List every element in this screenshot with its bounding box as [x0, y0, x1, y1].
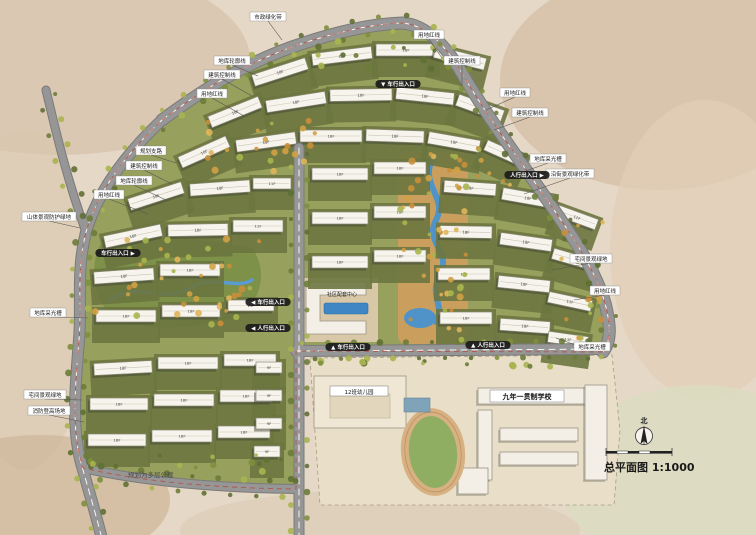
building-floors-label: 18F — [396, 254, 403, 259]
landscape-tree — [436, 268, 440, 272]
street-tree — [140, 125, 146, 131]
entrance-marker-text: ▲ 车行出入口 — [331, 343, 365, 351]
landscape-tree — [301, 158, 307, 164]
landscape-tree — [335, 38, 342, 45]
building-floors-label: 18F — [115, 402, 122, 407]
landscape-tree — [448, 277, 454, 283]
building-floors-label: 18F — [336, 172, 343, 177]
street-tree — [69, 319, 74, 324]
landscape-tree — [174, 311, 181, 318]
street-tree — [304, 385, 309, 390]
street-tree — [547, 215, 553, 221]
landscape-tree — [455, 184, 459, 188]
entrance-marker: ▲ 车行出入口 — [325, 343, 370, 351]
landscape-tree — [270, 168, 276, 174]
landscape-tree — [208, 321, 215, 328]
landscape-tree — [443, 308, 448, 313]
landscape-tree — [270, 122, 274, 126]
building-slab: 18F — [86, 434, 146, 449]
landscape-tree — [559, 257, 563, 261]
landscape-tree — [194, 465, 198, 469]
entrance-marker-text: ▲ 人行出入口 — [471, 341, 505, 349]
street-tree — [74, 476, 80, 482]
callout-text: 山体景观防护绿地 — [27, 213, 72, 221]
callout-text: 用地红线 — [98, 191, 121, 199]
building-floors-label: 18F — [292, 99, 300, 105]
callout-text: 用地红线 — [201, 90, 224, 98]
sports-court — [404, 398, 430, 412]
building-slab: 18F — [160, 305, 220, 320]
landscape-tree — [547, 364, 553, 370]
landscape-tree — [461, 208, 467, 214]
building-floors-label: 18F — [216, 185, 223, 190]
planning-note-text: 规划为多层公建 — [128, 470, 174, 479]
landscape-tree — [458, 284, 464, 290]
street-tree — [495, 355, 500, 360]
street-tree — [70, 293, 75, 298]
street-tree — [451, 44, 456, 49]
street-tree — [202, 491, 207, 496]
landscape-tree — [233, 314, 239, 320]
landscape-tree — [429, 152, 433, 156]
street-tree — [106, 166, 112, 172]
building-floors-label: 18F — [242, 394, 249, 399]
street-tree — [40, 108, 45, 113]
street-tree — [113, 464, 118, 469]
building-floors-label: 18F — [187, 309, 194, 314]
building-floors-label: 18F — [521, 323, 528, 328]
street-tree — [568, 218, 572, 222]
street-tree — [101, 208, 105, 212]
entrance-marker-text: 车行出入口 ▶ — [101, 249, 135, 257]
callout-text: 地库采光槽 — [578, 343, 606, 351]
building-floors-label: 18F — [336, 216, 343, 221]
street-tree — [313, 356, 318, 361]
street-tree — [480, 89, 485, 94]
street-tree — [289, 243, 294, 248]
landscape-tree — [195, 310, 202, 317]
street-tree — [304, 411, 309, 416]
landscape-tree — [457, 327, 462, 332]
street-tree — [52, 158, 58, 164]
landscape-tree — [193, 296, 199, 302]
landscape-tree — [238, 285, 245, 292]
landscape-tree — [362, 361, 366, 365]
street-tree — [160, 108, 164, 112]
street-tree — [190, 474, 194, 478]
building-floors-label: 18F — [462, 316, 469, 321]
street-tree — [65, 423, 70, 428]
building-floors-label: 18F — [396, 166, 403, 171]
street-tree — [595, 304, 599, 308]
building-floors-label: 9F — [267, 365, 272, 370]
landscape-tree — [408, 317, 412, 321]
street-tree — [200, 98, 207, 105]
callout-text: 规划支路 — [140, 147, 163, 155]
street-tree — [390, 355, 396, 361]
landscape-tree — [453, 154, 459, 160]
landscape-tree — [231, 293, 238, 300]
landscape-tree — [408, 158, 415, 165]
building-slab: 18F — [374, 44, 436, 59]
landscape-tree — [477, 147, 482, 152]
street-tree — [267, 478, 273, 484]
building-slab: 18F — [310, 212, 368, 227]
landscape-tree — [397, 206, 403, 212]
street-tree — [80, 213, 87, 220]
landscape-tree — [427, 191, 431, 195]
street-tree — [304, 359, 310, 365]
street-tree — [365, 32, 370, 37]
callout-text: 建筑控制线 — [448, 57, 476, 65]
landscape-tree — [462, 272, 467, 277]
street-tree — [488, 130, 492, 134]
landscape-tree — [177, 463, 182, 468]
street-tree — [288, 320, 293, 325]
street-tree — [228, 493, 232, 497]
callout-text: 地库轮廓线 — [218, 57, 246, 65]
landscape-tree — [428, 233, 432, 237]
street-tree — [60, 184, 65, 189]
building-floors-label: 18F — [186, 268, 193, 273]
landscape-tree — [217, 320, 223, 326]
callout-text: 沿街景观绿化带 — [551, 170, 590, 178]
street-tree — [80, 409, 86, 415]
building-floors-label: 18F — [421, 93, 428, 99]
building-slab: 18F — [298, 130, 362, 145]
street-tree — [304, 489, 311, 496]
street-tree — [288, 528, 294, 534]
landscape-tree — [404, 196, 410, 202]
landscape-tree — [427, 254, 433, 260]
landscape-tree — [158, 454, 162, 458]
landscape-tree — [403, 63, 407, 67]
street-tree — [376, 14, 381, 19]
landscape-tree — [174, 256, 180, 262]
kindergarten — [314, 376, 406, 428]
street-tree — [46, 133, 51, 138]
landscape-tree — [448, 290, 454, 296]
callout-text: 建筑控制线 — [516, 109, 544, 117]
plan-title: 总平面图 1:1000 — [604, 460, 695, 474]
street-tree — [523, 153, 529, 159]
street-tree — [288, 398, 295, 405]
kindergarten-label-text: 12班幼儿园 — [345, 388, 374, 396]
landscape-tree — [257, 461, 262, 466]
entrance-marker-text: ◀ 人行出入口 — [251, 324, 285, 332]
school-label: 九年一贯制学校 — [490, 390, 564, 402]
swimming-pool — [324, 303, 368, 314]
kindergarten-label: 12班幼儿园 — [330, 386, 388, 396]
landscape-tree — [164, 237, 171, 244]
landscape-tree — [501, 179, 505, 183]
building-floors-label: 18F — [520, 281, 527, 287]
callout-text: 地库轮廓线 — [120, 177, 148, 185]
landscape-tree — [83, 453, 89, 459]
street-tree — [304, 333, 310, 339]
landscape-tree — [353, 53, 358, 58]
street-tree — [267, 61, 273, 67]
street-tree — [377, 339, 384, 346]
street-tree — [324, 25, 329, 30]
entrance-marker: 人行出入口 ▶ — [504, 171, 549, 179]
north-label-text: 北 — [641, 416, 648, 425]
landscape-tree — [259, 468, 266, 475]
landscape-tree — [454, 227, 459, 232]
landscape-tree — [256, 129, 260, 133]
landscape-tree — [479, 158, 484, 163]
landscape-tree — [588, 302, 594, 308]
building-floors-label: 18F — [120, 273, 127, 278]
building-floors-label: 18F — [391, 133, 398, 138]
landscape-tree — [159, 247, 163, 251]
street-tree — [58, 116, 64, 122]
landscape-tree — [206, 129, 213, 136]
building-slab: 9F — [254, 390, 282, 404]
street-tree — [599, 355, 604, 360]
landscape-tree — [254, 453, 258, 457]
landscape-tree — [564, 317, 568, 321]
landscape-tree — [461, 162, 467, 168]
landscape-tree — [205, 155, 211, 161]
building-floors-label: 18F — [194, 228, 201, 233]
landscape-tree — [98, 463, 105, 470]
street-tree — [64, 141, 70, 147]
street-tree — [293, 478, 299, 484]
street-tree — [533, 339, 538, 344]
street-tree — [65, 370, 72, 377]
building-slab: 18F — [364, 129, 424, 146]
street-tree — [304, 437, 310, 443]
street-tree — [304, 177, 310, 183]
building-floors-label: 18F — [357, 93, 364, 98]
street-tree — [123, 145, 128, 150]
street-tree — [288, 502, 294, 508]
building-floors-label: 18F — [522, 239, 530, 245]
landscape-tree — [210, 454, 215, 459]
landscape-tree — [90, 461, 96, 467]
street-tree — [417, 356, 421, 360]
street-tree — [254, 494, 258, 498]
building-floors-label: 18F — [246, 358, 253, 363]
building-floors-label: 18F — [336, 260, 343, 265]
landscape-tree — [181, 301, 186, 306]
landscape-tree — [318, 360, 323, 365]
building-floors-label: 18F — [119, 365, 126, 370]
callout-text: 宅间景观绿地 — [28, 391, 62, 399]
street-tree — [404, 13, 410, 19]
street-tree — [86, 215, 93, 222]
street-tree — [315, 44, 322, 51]
landscape-tree — [282, 148, 288, 154]
street-tree — [289, 425, 294, 430]
landscape-tree — [487, 171, 491, 175]
landscape-tree — [210, 462, 216, 468]
landscape-tree — [439, 293, 443, 297]
entrance-marker-text: 人行出入口 ▶ — [510, 171, 544, 179]
street-tree — [84, 332, 90, 338]
building-floors-label: 18F — [184, 361, 191, 366]
landscape-tree — [527, 364, 532, 369]
street-tree — [582, 239, 588, 245]
street-tree — [241, 476, 248, 483]
street-tree — [304, 255, 310, 261]
landscape-tree — [187, 291, 193, 297]
street-tree — [68, 450, 73, 455]
school-label-text: 九年一贯制学校 — [502, 392, 553, 401]
street-tree — [79, 191, 85, 197]
building-slab: 11F — [251, 178, 291, 192]
landscape-tree — [421, 362, 425, 366]
axis-pond — [404, 308, 436, 328]
street-tree — [473, 108, 479, 114]
building-slab: 18F — [310, 256, 368, 271]
landscape-tree — [225, 148, 230, 153]
street-tree — [349, 19, 354, 24]
landscape-tree — [126, 292, 130, 296]
street-tree — [532, 193, 538, 199]
street-tree — [279, 494, 285, 500]
street-tree — [547, 355, 551, 359]
street-tree — [573, 355, 577, 359]
landscape-tree — [318, 62, 325, 69]
building-floors-label: 11F — [254, 224, 261, 229]
landscape-tree — [464, 253, 468, 257]
street-tree — [91, 230, 97, 236]
building-slab: 18F — [310, 168, 368, 183]
street-tree — [288, 268, 293, 273]
street-tree — [466, 66, 472, 72]
landscape-tree — [420, 56, 427, 63]
street-tree — [53, 92, 57, 96]
landscape-tree — [415, 248, 422, 255]
landscape-tree — [402, 46, 406, 50]
landscape-tree — [457, 158, 462, 163]
street-tree — [100, 509, 106, 515]
entrance-marker: ▲ 人行出入口 — [465, 341, 510, 349]
building-floors-label: 18F — [122, 314, 129, 319]
masterplan-canvas: 18F18F18F18F18F18F18F18F18F18F18F18F18F1… — [0, 0, 756, 535]
community-center-label: 社区配套中心 — [327, 291, 357, 298]
building-slab: 18F — [372, 162, 426, 177]
building-floors-label: 18F — [240, 430, 247, 435]
landscape-tree — [124, 237, 130, 243]
landscape-tree — [142, 237, 148, 243]
building-floors-label: 18F — [180, 398, 187, 403]
street-tree — [304, 229, 309, 234]
street-tree — [614, 314, 618, 318]
street-tree — [339, 357, 343, 361]
landscape-tree — [508, 183, 512, 187]
street-tree — [305, 308, 310, 313]
school-building — [498, 452, 578, 467]
landscape-tree — [248, 459, 255, 466]
landscape-tree — [141, 257, 147, 263]
street-tree — [443, 356, 447, 360]
landscape-tree — [263, 137, 268, 142]
callout-text: 建筑控制线 — [130, 162, 158, 170]
building-slab: 18F — [94, 310, 156, 325]
landscape-tree — [365, 65, 371, 71]
street-tree — [181, 92, 187, 98]
landscape-tree — [306, 118, 312, 124]
street-tree — [520, 355, 526, 361]
street-tree — [305, 152, 309, 156]
building-slab: 11F — [231, 220, 283, 235]
landscape-tree — [271, 149, 278, 156]
street-tree — [226, 65, 230, 69]
callout-text: 用地红线 — [504, 89, 527, 97]
building-slab: 9F — [254, 418, 282, 432]
street-tree — [430, 340, 434, 344]
street-tree — [300, 341, 305, 346]
street-tree — [299, 33, 304, 38]
landscape-tree — [588, 311, 592, 315]
landscape-tree — [402, 220, 407, 225]
landscape-tree — [409, 203, 415, 209]
landscape-tree — [576, 336, 581, 341]
landscape-tree — [236, 154, 243, 161]
landscape-tree — [209, 150, 214, 155]
callout-text: 宅间景观绿地 — [574, 255, 608, 263]
landscape-tree — [131, 282, 137, 288]
street-tree — [289, 165, 294, 170]
landscape-tree — [186, 254, 192, 260]
building-floors-label: 18F — [178, 434, 185, 439]
landscape-tree — [437, 41, 442, 46]
landscape-tree — [415, 177, 421, 183]
street-tree — [93, 484, 99, 490]
landscape-tree — [133, 312, 140, 319]
landscape-tree — [428, 65, 435, 72]
callout-text: 用地红线 — [418, 31, 441, 39]
street-tree — [72, 239, 79, 246]
street-tree — [304, 515, 310, 521]
building-floors-label: 9F — [265, 449, 270, 454]
landscape-tree — [92, 308, 99, 315]
landscape-tree — [391, 45, 396, 50]
landscape-tree — [457, 293, 464, 300]
landscape-tree — [340, 52, 346, 58]
landscape-tree — [127, 285, 132, 290]
street-tree — [149, 486, 154, 491]
street-tree — [586, 280, 592, 286]
landscape-tree — [425, 175, 432, 182]
building-floors-label: 18F — [113, 438, 120, 443]
landscape-tree — [227, 263, 232, 268]
landscape-tree — [586, 356, 590, 360]
landscape-tree — [257, 239, 261, 243]
landscape-tree — [224, 309, 228, 313]
callout-text: 地库采光槽 — [34, 309, 62, 317]
landscape-tree — [443, 230, 448, 235]
callout-text: 地库采光槽 — [534, 155, 562, 163]
street-tree — [89, 526, 94, 531]
building-floors-label: 18F — [462, 230, 469, 235]
building-floors-label: 9F — [267, 421, 272, 426]
street-tree — [288, 346, 294, 352]
street-tree — [274, 42, 278, 46]
building-slab: 18F — [328, 88, 392, 104]
landscape-tree — [510, 363, 517, 370]
landscape-tree — [576, 224, 580, 228]
landscape-tree — [600, 220, 604, 224]
street-tree — [431, 24, 437, 30]
street-tree — [179, 112, 186, 119]
street-tree — [123, 482, 129, 488]
street-tree — [85, 305, 91, 311]
entrance-marker-text: ▼ 车行出入口 — [381, 80, 415, 88]
